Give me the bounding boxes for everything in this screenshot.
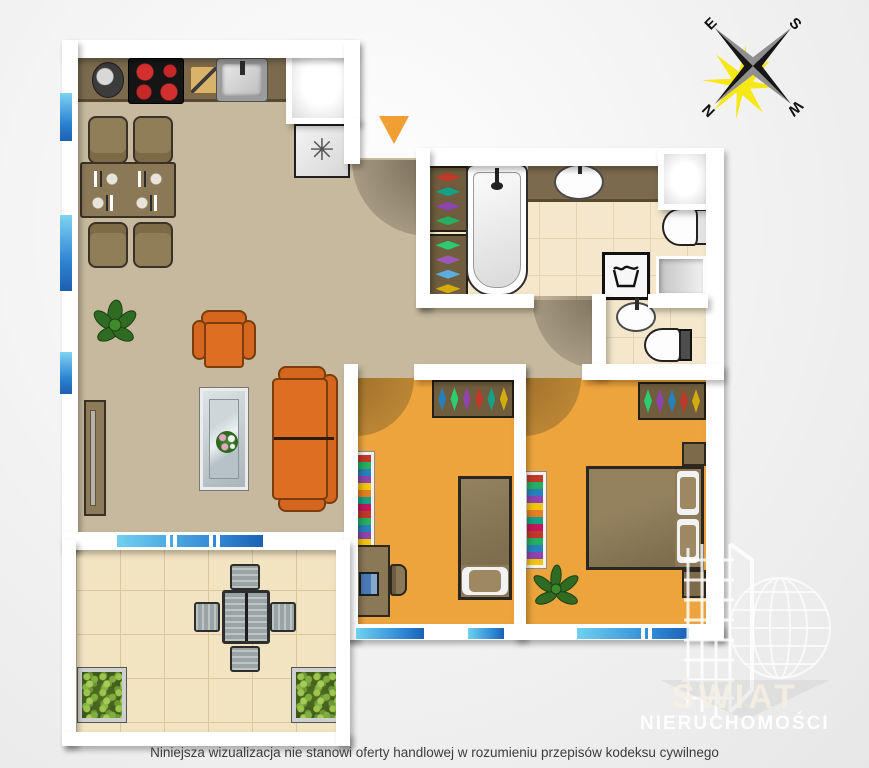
clothes-icon: [436, 255, 461, 264]
wall: [420, 148, 664, 166]
stove-icon: [128, 58, 184, 104]
wall: [414, 364, 524, 380]
wall: [658, 148, 712, 210]
dining-chair: [133, 116, 173, 164]
place-setting: [134, 169, 164, 189]
bedroom1-window: [356, 628, 424, 639]
bed-blanket: [461, 479, 509, 565]
niche-inner: [664, 154, 706, 204]
sofa: [272, 366, 338, 512]
clothes-icon: [450, 387, 458, 410]
window: [60, 93, 72, 141]
sideboard-front: [90, 410, 96, 506]
sofa-cushion-divider: [274, 437, 334, 440]
dining-table: [80, 162, 176, 218]
wall: [582, 364, 724, 380]
clothes-icon: [436, 216, 461, 225]
balcony-chair: [230, 646, 260, 672]
dining-chair: [133, 222, 173, 268]
wall: [344, 40, 360, 124]
flower-centerpiece-icon: [216, 431, 238, 453]
clothes-icon: [438, 387, 446, 410]
cutting-board-icon: [190, 66, 218, 94]
wall: [62, 40, 354, 58]
window-mullion: [166, 534, 170, 548]
wall: [336, 540, 350, 746]
wall: [62, 540, 76, 746]
clothes-icon: [436, 187, 461, 196]
fridge-freezer-icon: ✳: [309, 136, 334, 166]
bed-pillow: [462, 567, 508, 595]
wall: [62, 732, 350, 746]
balcony-window: [117, 535, 263, 547]
bedroom1-wardrobe: [432, 380, 514, 418]
clothes-icon: [475, 387, 483, 410]
clothes-icon: [487, 387, 495, 410]
clothes-icon: [436, 241, 461, 250]
toilet: [662, 208, 708, 246]
wc-toilet: [644, 328, 692, 362]
bathroom-niche: [656, 256, 706, 296]
wc-toilet-bowl: [644, 328, 681, 362]
place-setting: [90, 169, 120, 189]
window: [60, 215, 72, 291]
clothes-icon: [463, 387, 471, 410]
clothes-icon: [680, 389, 688, 412]
bedroom1-window-2: [468, 628, 504, 639]
balcony-planter: [292, 668, 340, 722]
hall-wardrobe: [428, 166, 468, 232]
watermark-logo: ŚWIAT NIERUCHOMOŚCI: [620, 530, 869, 750]
faucet-icon: [240, 61, 245, 75]
bathtub: [466, 164, 528, 296]
laundry-tub-icon: [611, 263, 641, 289]
balcony-table-divider: [245, 593, 248, 641]
compass-rose-icon: N E S W: [686, 2, 820, 130]
bedroom2-bookshelf: [524, 472, 546, 568]
clothes-icon: [668, 389, 676, 412]
toilet-bowl: [662, 208, 698, 246]
clothes-icon: [692, 389, 700, 412]
clothes-icon: [656, 389, 664, 412]
washing-machine: [602, 252, 650, 300]
wall: [416, 294, 534, 308]
coffee-table: [200, 388, 248, 490]
bathtub-faucet-icon: [491, 182, 503, 190]
balcony-planter: [78, 668, 126, 722]
place-setting: [134, 193, 164, 213]
armchair-seat: [204, 322, 244, 368]
kettle-icon: [92, 62, 124, 98]
window-mullion: [216, 534, 220, 548]
wall: [648, 294, 708, 308]
kitchen-sink: [216, 58, 268, 102]
bed-pillow-inner: [469, 570, 501, 592]
disclaimer-text: Niniejsza wizualizacja nie stanowi ofert…: [0, 745, 869, 760]
clothes-icon: [436, 284, 461, 293]
window-mullion: [173, 534, 177, 548]
potted-plant-icon: [530, 564, 582, 614]
wall: [416, 148, 430, 308]
watermark-subtitle: NIERUCHOMOŚCI: [640, 713, 830, 735]
desk-chair: [390, 564, 407, 596]
balcony-chair: [270, 602, 296, 632]
clothes-icon: [436, 173, 461, 182]
window: [60, 352, 72, 394]
clothes-icon: [500, 387, 508, 410]
window-mullion: [209, 534, 213, 548]
clothes-icon: [436, 202, 461, 211]
armchair: [192, 310, 256, 368]
bedside-table: [682, 442, 706, 466]
balcony-table: [222, 590, 270, 644]
sideboard: [84, 400, 106, 516]
faucet-icon: [635, 298, 639, 310]
bed-pillow: [677, 471, 699, 515]
computer-icon: [359, 572, 379, 596]
bedroom2-wardrobe: [638, 382, 706, 420]
balcony-chair: [194, 602, 220, 632]
entrance-marker-icon: [379, 116, 409, 144]
clothes-icon: [436, 270, 461, 279]
fridge-freezer: ✳: [294, 124, 350, 178]
place-setting: [90, 193, 120, 213]
clothes-icon: [644, 389, 652, 412]
dining-chair: [88, 222, 128, 268]
single-bed: [458, 476, 512, 600]
page-background: ✳: [0, 0, 869, 768]
dining-chair: [88, 116, 128, 164]
balcony-chair: [230, 564, 260, 590]
bathroom-sink: [554, 164, 604, 200]
potted-plant-icon: [90, 298, 140, 350]
wall: [514, 364, 526, 640]
bed-pillow-inner: [680, 477, 696, 509]
watermark-title: ŚWIAT: [672, 678, 799, 717]
hall-wardrobe: [428, 234, 468, 300]
wall: [344, 118, 360, 164]
